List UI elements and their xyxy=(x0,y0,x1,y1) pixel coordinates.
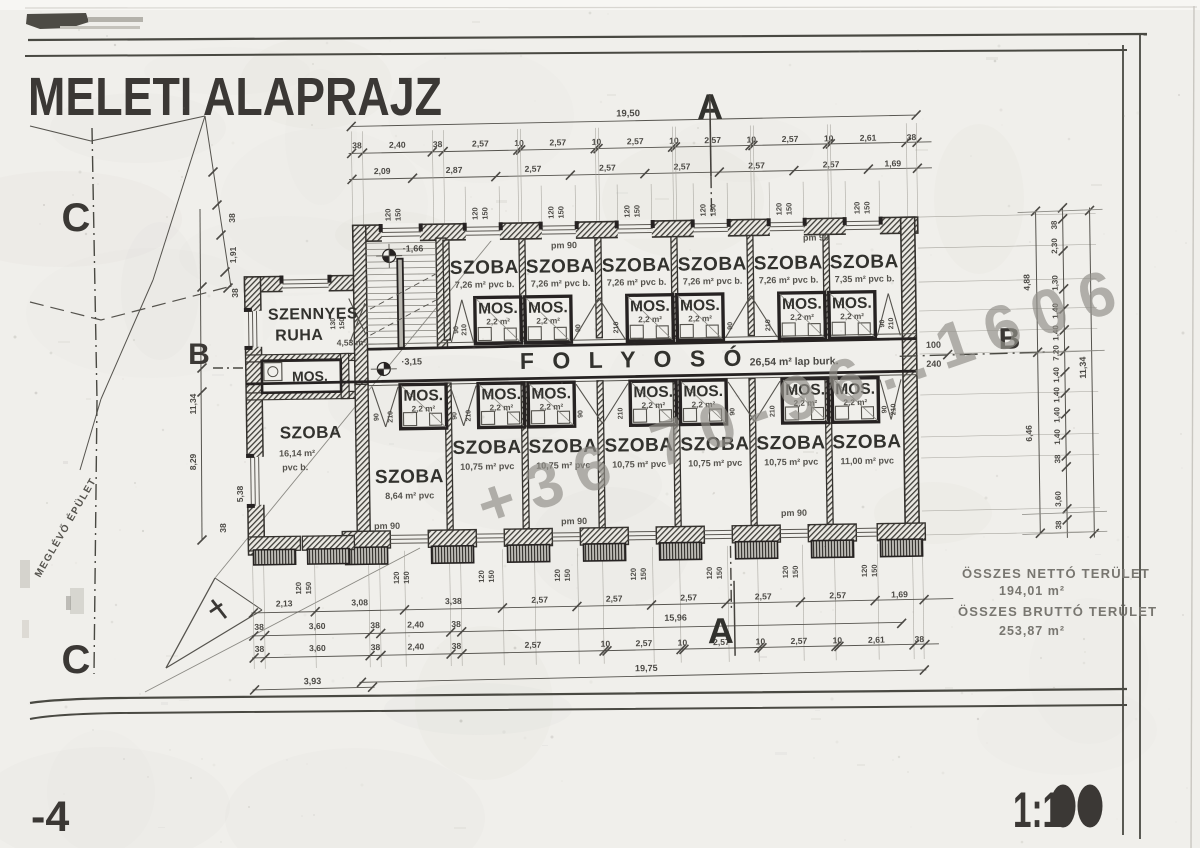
svg-text:3,60: 3,60 xyxy=(1054,491,1063,507)
svg-text:120: 120 xyxy=(705,567,714,580)
svg-text:MOS.: MOS. xyxy=(478,300,518,318)
svg-text:90: 90 xyxy=(451,412,458,420)
svg-text:MOS.: MOS. xyxy=(292,368,328,385)
svg-text:10: 10 xyxy=(746,134,756,144)
svg-text:2,61: 2,61 xyxy=(860,133,877,143)
svg-text:38: 38 xyxy=(255,644,265,654)
svg-text:253,87 m²: 253,87 m² xyxy=(999,624,1065,638)
svg-text:2,57: 2,57 xyxy=(524,640,541,650)
svg-text:MOS.: MOS. xyxy=(531,385,571,403)
svg-text:150: 150 xyxy=(708,204,717,217)
svg-text:11,34: 11,34 xyxy=(1078,357,1088,379)
svg-text:1,40: 1,40 xyxy=(1052,407,1061,423)
svg-text:A: A xyxy=(707,610,734,651)
svg-text:10: 10 xyxy=(833,635,843,645)
svg-text:pm 90: pm 90 xyxy=(374,521,400,531)
svg-text:2,57: 2,57 xyxy=(549,137,566,147)
svg-text:150: 150 xyxy=(563,569,572,582)
svg-text:pm 90: pm 90 xyxy=(781,508,807,518)
svg-text:194,01 m²: 194,01 m² xyxy=(999,584,1065,598)
svg-text:38: 38 xyxy=(370,620,380,630)
svg-text:150: 150 xyxy=(715,567,724,580)
svg-text:SZOBA: SZOBA xyxy=(450,257,519,279)
svg-text:pm 90: pm 90 xyxy=(561,516,587,526)
svg-text:1,40: 1,40 xyxy=(1053,429,1062,445)
svg-text:2,13: 2,13 xyxy=(276,598,293,608)
svg-text:150: 150 xyxy=(784,203,793,216)
svg-text:2,2 m²: 2,2 m² xyxy=(790,313,814,322)
svg-text:150: 150 xyxy=(304,582,313,595)
svg-text:8,29: 8,29 xyxy=(188,453,198,470)
svg-text:120: 120 xyxy=(294,582,303,595)
svg-text:150: 150 xyxy=(402,571,411,584)
svg-text:2,57: 2,57 xyxy=(472,138,489,148)
svg-text:38: 38 xyxy=(452,641,462,651)
svg-text:SZOBA: SZOBA xyxy=(280,423,342,443)
svg-text:2,2 m²: 2,2 m² xyxy=(638,315,662,324)
svg-text:120: 120 xyxy=(470,207,479,220)
svg-text:120: 120 xyxy=(860,565,869,578)
svg-text:38: 38 xyxy=(371,642,381,652)
svg-text:120: 120 xyxy=(774,203,783,216)
svg-text:MELETI ALAPRAJZ: MELETI ALAPRAJZ xyxy=(28,67,442,127)
svg-text:2,57: 2,57 xyxy=(829,590,846,600)
svg-text:38: 38 xyxy=(1054,520,1063,530)
svg-text:7,26 m² pvc b.: 7,26 m² pvc b. xyxy=(531,278,591,289)
svg-text:150: 150 xyxy=(870,564,879,577)
svg-text:10,75 m² pvc: 10,75 m² pvc xyxy=(764,457,818,468)
svg-text:2,57: 2,57 xyxy=(599,163,616,173)
svg-text:15,96: 15,96 xyxy=(664,613,687,623)
svg-text:2,87: 2,87 xyxy=(446,165,463,175)
svg-text:SZOBA: SZOBA xyxy=(375,466,444,488)
svg-text:3,38: 3,38 xyxy=(445,596,462,606)
svg-text:MOS.: MOS. xyxy=(633,384,673,402)
svg-text:38: 38 xyxy=(907,132,917,142)
svg-text:3,08: 3,08 xyxy=(351,597,368,607)
svg-text:3,60: 3,60 xyxy=(309,621,326,631)
svg-text:2,57: 2,57 xyxy=(525,164,542,174)
svg-text:8,64 m² pvc: 8,64 m² pvc xyxy=(385,490,434,501)
svg-text:1,69: 1,69 xyxy=(884,158,901,168)
svg-text:7,26 m² pvc b.: 7,26 m² pvc b. xyxy=(607,277,667,288)
svg-text:19,50: 19,50 xyxy=(616,108,640,119)
svg-text:1,40: 1,40 xyxy=(1052,367,1061,383)
svg-text:150: 150 xyxy=(487,570,496,583)
svg-text:10: 10 xyxy=(592,137,602,147)
svg-text:120: 120 xyxy=(698,204,707,217)
svg-text:SZOBA: SZOBA xyxy=(602,255,671,277)
svg-text:10: 10 xyxy=(514,138,524,148)
svg-text:150: 150 xyxy=(791,566,800,579)
svg-text:90: 90 xyxy=(881,406,888,414)
svg-text:2,2 m²: 2,2 m² xyxy=(536,316,560,325)
svg-text:2,2 m²: 2,2 m² xyxy=(840,312,864,321)
svg-text:120: 120 xyxy=(852,202,861,215)
svg-text:SZENNYES: SZENNYES xyxy=(268,305,358,323)
svg-text:11,00 m² pvc: 11,00 m² pvc xyxy=(840,455,894,466)
svg-text:MOS.: MOS. xyxy=(528,299,568,317)
svg-text:90: 90 xyxy=(577,410,584,418)
svg-text:10: 10 xyxy=(824,133,834,143)
svg-text:MOS.: MOS. xyxy=(680,297,720,315)
svg-text:16,14 m²: 16,14 m² xyxy=(279,448,315,459)
svg-text:2,57: 2,57 xyxy=(627,136,644,146)
svg-text:2,09: 2,09 xyxy=(374,166,391,176)
svg-text:2,57: 2,57 xyxy=(635,638,652,648)
svg-text:38: 38 xyxy=(433,139,443,149)
svg-text:38: 38 xyxy=(230,288,240,298)
svg-text:7,26 m² pvc b.: 7,26 m² pvc b. xyxy=(683,276,743,287)
svg-text:SZOBA: SZOBA xyxy=(754,252,823,274)
svg-text:1,40: 1,40 xyxy=(1052,387,1061,403)
svg-text:90: 90 xyxy=(453,326,460,334)
svg-text:2,2 m²: 2,2 m² xyxy=(412,404,436,413)
svg-text:120: 120 xyxy=(477,570,486,583)
svg-text:pm 90: pm 90 xyxy=(803,232,829,242)
svg-text:120: 120 xyxy=(781,566,790,579)
svg-text:120: 120 xyxy=(622,205,631,218)
svg-text:90: 90 xyxy=(727,322,734,330)
svg-text:1,91: 1,91 xyxy=(228,246,238,263)
svg-text:210: 210 xyxy=(461,324,468,336)
svg-text:210: 210 xyxy=(765,319,772,331)
svg-text:SZOBA: SZOBA xyxy=(526,256,595,278)
svg-text:2,40: 2,40 xyxy=(407,619,424,629)
svg-text:7,35 m² pvc b.: 7,35 m² pvc b. xyxy=(835,273,895,284)
svg-text:120: 120 xyxy=(392,571,401,584)
svg-text:·3,15: ·3,15 xyxy=(401,356,422,366)
svg-text:2,30: 2,30 xyxy=(1050,238,1059,254)
svg-text:F O L Y O S Ó: F O L Y O S Ó xyxy=(520,344,748,374)
svg-text:pm 90: pm 90 xyxy=(551,240,577,250)
svg-text:MOS.: MOS. xyxy=(832,295,872,313)
svg-text:210: 210 xyxy=(617,407,624,419)
svg-text:4,53 m²: 4,53 m² xyxy=(337,337,367,347)
svg-text:38: 38 xyxy=(352,140,362,150)
svg-text:150: 150 xyxy=(480,207,489,220)
svg-text:SZOBA: SZOBA xyxy=(452,437,521,459)
svg-text:120: 120 xyxy=(546,206,555,219)
svg-text:6,46: 6,46 xyxy=(1024,425,1034,442)
svg-text:210: 210 xyxy=(465,410,472,422)
svg-text:210: 210 xyxy=(387,411,394,423)
svg-text:38: 38 xyxy=(1053,454,1062,464)
svg-text:10: 10 xyxy=(678,638,688,648)
svg-text:10: 10 xyxy=(601,639,611,649)
svg-text:2,61: 2,61 xyxy=(868,635,885,645)
svg-text:MOS.: MOS. xyxy=(481,386,521,404)
svg-text:38: 38 xyxy=(915,634,925,644)
svg-text:38: 38 xyxy=(218,523,228,533)
svg-text:2,40: 2,40 xyxy=(407,641,424,651)
svg-text:2,2 m²: 2,2 m² xyxy=(539,402,563,411)
svg-text:210: 210 xyxy=(613,322,620,334)
svg-text:90: 90 xyxy=(373,413,380,421)
svg-text:2,57: 2,57 xyxy=(704,135,721,145)
svg-text:7,26 m² pvc b.: 7,26 m² pvc b. xyxy=(759,275,819,286)
svg-text:2,2 m²: 2,2 m² xyxy=(688,314,712,323)
svg-text:38: 38 xyxy=(227,213,237,223)
svg-text:1,69: 1,69 xyxy=(891,589,908,599)
svg-text:3,60: 3,60 xyxy=(309,643,326,653)
svg-text:10: 10 xyxy=(669,136,679,146)
svg-text:120: 120 xyxy=(629,568,638,581)
svg-text:7,26 m² pvc b.: 7,26 m² pvc b. xyxy=(455,279,515,290)
svg-text:MOS.: MOS. xyxy=(782,295,822,313)
svg-text:90: 90 xyxy=(879,320,886,328)
svg-text:150: 150 xyxy=(639,568,648,581)
svg-text:SZOBA: SZOBA xyxy=(830,251,899,273)
svg-text:pvc b.: pvc b. xyxy=(282,462,308,472)
svg-text:B: B xyxy=(188,338,210,371)
svg-text:SZOBA: SZOBA xyxy=(678,254,747,276)
svg-text:38: 38 xyxy=(451,619,461,629)
svg-text:120: 120 xyxy=(553,569,562,582)
svg-text:150: 150 xyxy=(393,208,402,221)
svg-text:150: 150 xyxy=(556,206,565,219)
svg-text:2,57: 2,57 xyxy=(606,593,623,603)
svg-text:2,57: 2,57 xyxy=(531,595,548,605)
svg-text:150: 150 xyxy=(632,205,641,218)
svg-text:38: 38 xyxy=(254,622,264,632)
svg-text:90: 90 xyxy=(575,324,582,332)
svg-text:38: 38 xyxy=(1050,220,1059,230)
svg-text:RUHA: RUHA xyxy=(275,327,323,345)
svg-text:C: C xyxy=(62,638,91,682)
svg-text:120: 120 xyxy=(383,209,392,222)
svg-text:2,57: 2,57 xyxy=(790,636,807,646)
svg-text:2,57: 2,57 xyxy=(755,591,772,601)
svg-text:2,57: 2,57 xyxy=(782,134,799,144)
svg-text:5,38: 5,38 xyxy=(235,485,245,502)
svg-text:2,57: 2,57 xyxy=(680,592,697,602)
svg-text:150: 150 xyxy=(862,201,871,214)
svg-text:·1,66: ·1,66 xyxy=(403,243,424,253)
svg-text:2,40: 2,40 xyxy=(389,140,406,150)
svg-text:19,75: 19,75 xyxy=(635,663,658,673)
svg-text:MOS.: MOS. xyxy=(630,298,670,316)
svg-text:210: 210 xyxy=(890,403,897,415)
svg-text:3,93: 3,93 xyxy=(304,676,322,686)
svg-text:MOS.: MOS. xyxy=(403,387,443,405)
svg-text:ÖSSZES BRUTTÓ TERÜLET: ÖSSZES BRUTTÓ TERÜLET xyxy=(958,604,1157,619)
svg-text:2,2 m²: 2,2 m² xyxy=(490,403,514,412)
svg-text:11,34: 11,34 xyxy=(188,393,198,414)
svg-text:SZOBA: SZOBA xyxy=(832,431,901,453)
svg-text:ÖSSZES NETTÓ TERÜLET: ÖSSZES NETTÓ TERÜLET xyxy=(962,566,1150,581)
svg-text:10: 10 xyxy=(756,636,766,646)
svg-text:-4: -4 xyxy=(31,793,69,841)
